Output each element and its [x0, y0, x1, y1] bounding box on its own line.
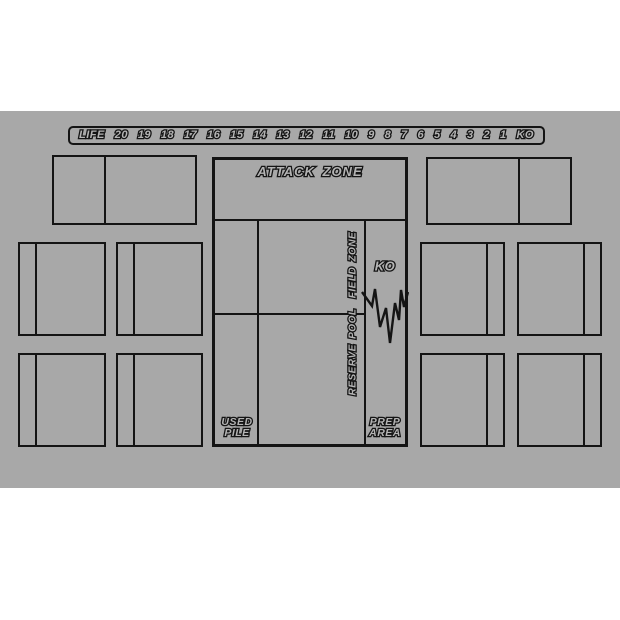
card-slot-left-4 — [116, 353, 203, 447]
life-track-value: 4 — [451, 130, 458, 141]
life-track-value: 8 — [385, 130, 392, 141]
life-track-value: 20 — [115, 130, 128, 141]
card-slot-left-3-divider — [35, 355, 37, 445]
life-track-value: 19 — [138, 130, 151, 141]
card-slot-left-2 — [116, 242, 203, 336]
card-slot-right-1-divider — [486, 244, 488, 334]
card-slot-left-3 — [18, 353, 106, 447]
life-track-value: 9 — [368, 130, 375, 141]
playmat-surface: LIFE 2019181716151413121110987654321KO — [0, 111, 620, 488]
life-track-value: 17 — [184, 130, 197, 141]
card-slot-right-3-divider — [486, 355, 488, 445]
ko-burst-divider-icon — [361, 283, 409, 347]
card-slot-right-2 — [517, 242, 602, 336]
life-track-value: 7 — [401, 130, 408, 141]
life-track-value: 12 — [300, 130, 313, 141]
used-pile-label-line2: PILE — [221, 428, 252, 439]
card-slot-left-1-divider — [35, 244, 37, 334]
life-track-label: LIFE — [79, 130, 105, 141]
deck-zone-top-left-divider — [104, 157, 106, 223]
attack-zone-divider — [215, 219, 405, 221]
life-track-value: 3 — [467, 130, 474, 141]
life-track-value: 10 — [345, 130, 358, 141]
card-slot-right-3 — [420, 353, 505, 447]
life-track-value: 1 — [500, 130, 507, 141]
reserve-pool-label: RESERVE POOL — [348, 309, 359, 396]
life-track-value: 6 — [418, 130, 425, 141]
life-track-value: 18 — [161, 130, 174, 141]
life-track-value: 13 — [276, 130, 289, 141]
field-reserve-divider — [215, 313, 366, 315]
card-slot-left-4-divider — [133, 355, 135, 445]
life-track-value: 11 — [323, 130, 335, 141]
ko-zone-label: KO — [375, 259, 396, 274]
attack-zone-label: ATTACK ZONE — [257, 164, 362, 179]
prep-area-label: PREP AREA — [369, 417, 401, 439]
life-track-value: 14 — [253, 130, 266, 141]
life-track-value: 15 — [230, 130, 243, 141]
deck-zone-top-right — [426, 157, 572, 225]
playmat-image: LIFE 2019181716151413121110987654321KO — [0, 0, 620, 620]
life-track: LIFE 2019181716151413121110987654321KO — [68, 126, 545, 145]
card-slot-right-1 — [420, 242, 505, 336]
deck-zone-top-right-divider — [518, 159, 520, 223]
life-track-value: 5 — [434, 130, 441, 141]
field-zone-label: FIELD ZONE — [348, 232, 359, 298]
life-track-value: 2 — [483, 130, 490, 141]
prep-area-label-line2: AREA — [369, 428, 401, 439]
card-slot-left-2-divider — [133, 244, 135, 334]
life-track-value: 16 — [207, 130, 220, 141]
card-slot-right-2-divider — [583, 244, 585, 334]
used-pile-column-divider — [257, 219, 259, 444]
card-slot-right-4 — [517, 353, 602, 447]
deck-zone-top-left — [52, 155, 197, 225]
used-pile-label: USED PILE — [221, 417, 252, 439]
card-slot-right-4-divider — [583, 355, 585, 445]
card-slot-left-1 — [18, 242, 106, 336]
battle-area: ATTACK ZONE FIELD ZONE RESERVE POOL KO U… — [212, 157, 408, 447]
life-track-value: KO — [516, 130, 534, 141]
